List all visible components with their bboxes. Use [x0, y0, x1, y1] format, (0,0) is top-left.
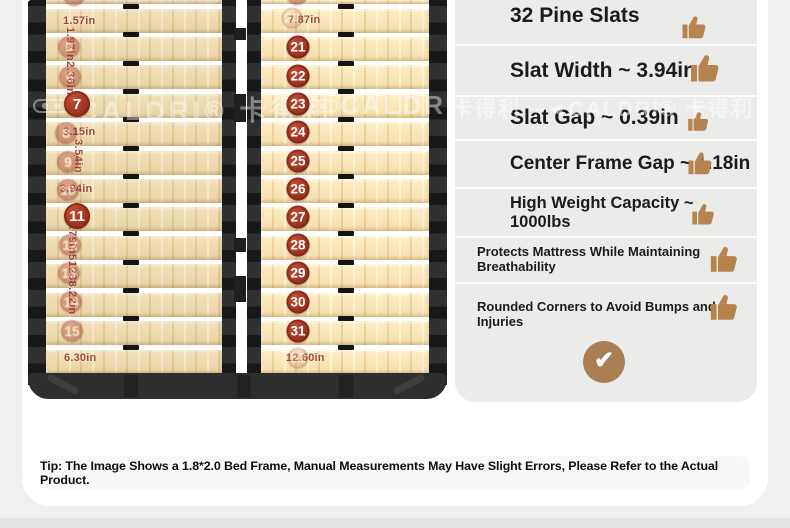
feature-label: Protects Mattress While Maintaining Brea… [477, 245, 722, 275]
tip-text: Tip: The Image Shows a 1.8*2.0 Bed Frame… [40, 459, 750, 487]
slat-center-clip [123, 32, 139, 37]
slat-number-badge: 25 [287, 150, 310, 173]
slat-center-clip [338, 345, 354, 350]
slat-number-badge: 21 [287, 36, 310, 59]
slat-number-badge: 23 [287, 93, 310, 116]
measurement-label: 1.57in [63, 15, 95, 27]
center-gap-bracket [234, 276, 246, 302]
thumbs-up-icon [690, 200, 718, 228]
slat-center-clip [123, 345, 139, 350]
slat-center-clip [123, 174, 139, 179]
slat-center-clip [123, 231, 139, 236]
slat-center-clip [338, 316, 354, 321]
slat-center-clip [338, 231, 354, 236]
feature-row: 32 Pine Slats [455, 0, 757, 46]
center-leg [237, 375, 251, 397]
slat-number-badge: 24 [287, 121, 310, 144]
slat-number-badge: 30 [287, 291, 310, 314]
slat-center-clip [123, 203, 139, 208]
slat-number-badge: 5 [58, 36, 80, 58]
slat-number-badge: 27 [287, 206, 310, 229]
slat-number-badge: 11 [64, 203, 90, 229]
thumbs-up-icon [708, 290, 742, 324]
slat-number-badge: 7 [64, 91, 90, 117]
frame-rail-center-left [222, 0, 236, 375]
slat-center-clip [123, 117, 139, 122]
slat-number-badge: 13 [58, 262, 80, 284]
slat-center-clip [338, 260, 354, 265]
slat-center-clip [123, 4, 139, 9]
slat-number-badge: 20 [282, 8, 303, 29]
slat-number-badge: 26 [287, 178, 310, 201]
page: 1.57in3.15in3.94in6.30in1.97in2.36in3.54… [0, 0, 790, 528]
slat-center-clip [123, 89, 139, 94]
slat-number-badge: 31 [287, 320, 310, 343]
slat-number-badge: 14 [60, 291, 82, 313]
frame-rail-outer-right [429, 0, 447, 385]
feature-label: Slat Gap ~ 0.39in [510, 106, 757, 130]
slat-number-badge: 29 [287, 262, 310, 285]
slat-number-badge: 6 [59, 66, 81, 88]
slat-center-clip [338, 4, 354, 9]
slat-center-clip [338, 288, 354, 293]
thumbs-up-icon [686, 148, 716, 178]
center-gap-bracket [234, 94, 246, 122]
slat-number-badge: 28 [287, 234, 310, 257]
frame-rail-outer-left [28, 0, 46, 385]
slat-number-badge: 10 [57, 179, 79, 201]
feature-panel: ✔ 32 Pine SlatsSlat Width ~ 3.94inSlat G… [455, 0, 757, 402]
slat-center-clip [123, 288, 139, 293]
slat-number-badge: 32 [288, 348, 309, 369]
center-gap-connector [234, 238, 246, 252]
thumbs-up-icon [686, 108, 712, 134]
thumbs-up-icon [708, 242, 742, 276]
tip-bar: Tip: The Image Shows a 1.8*2.0 Bed Frame… [40, 456, 750, 490]
center-leg [339, 375, 353, 397]
slat-center-clip [123, 61, 139, 66]
slat-number-badge: 8 [55, 122, 77, 144]
slat-center-clip [338, 203, 354, 208]
thumbs-up-icon [688, 50, 724, 86]
slat-center-clip [338, 61, 354, 66]
slat-number-badge: 15 [61, 320, 83, 342]
center-leg [124, 375, 138, 397]
slat-center-clip [123, 316, 139, 321]
measurement-label: 6.30in [64, 352, 96, 364]
slat-center-clip [338, 32, 354, 37]
slat-center-clip [338, 89, 354, 94]
feature-label: Center Frame Gap ~ 1.18in [510, 153, 757, 175]
slat-number-badge: 12 [59, 234, 81, 256]
thumbs-up-icon [680, 12, 710, 42]
center-gap-connector [234, 28, 246, 40]
frame-rail-center-right [247, 0, 261, 375]
slat-center-clip [123, 146, 139, 151]
slat-center-clip [338, 146, 354, 151]
slat-center-clip [123, 260, 139, 265]
slat-center-clip [338, 174, 354, 179]
slat-center-clip [338, 117, 354, 122]
feature-label: 32 Pine Slats [510, 4, 675, 28]
slat-number-badge: 9 [57, 151, 79, 173]
slat-number-badge: 22 [287, 65, 310, 88]
